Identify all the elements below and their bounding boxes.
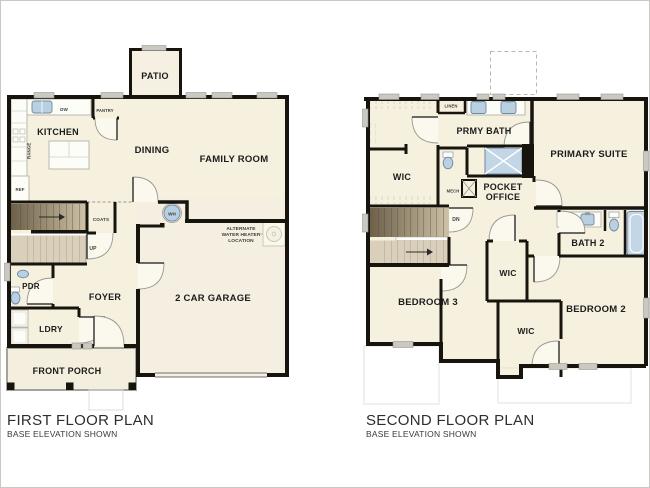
powder-sink	[18, 270, 29, 278]
bath2-toilet	[610, 219, 619, 231]
roof-outline-left	[364, 346, 439, 404]
patio-roof-outline	[491, 52, 537, 95]
stairs-second-floor	[368, 208, 449, 265]
label-foyer: FOYER	[89, 292, 122, 302]
label-wic-bedroom2: WIC	[517, 326, 534, 336]
toilet-tank	[11, 287, 20, 292]
stairs-first-floor	[9, 204, 86, 263]
label-dishwasher: DW	[60, 107, 68, 112]
label-refrigerator: REF	[15, 187, 24, 192]
second-floor-subtitle: BASE ELEVATION SHOWN	[366, 429, 476, 439]
toilet-tank	[609, 212, 619, 218]
porch-post	[66, 383, 74, 391]
label-range: RANGE	[27, 143, 32, 159]
second-floor-title: SECOND FLOOR PLAN	[366, 412, 534, 429]
water-heater-label: WH	[168, 212, 176, 217]
label-bedroom3: BEDROOM 3	[398, 297, 458, 308]
label-laundry: LDRY	[39, 324, 63, 334]
alt-water-heater-line2: WATER HEATER	[222, 232, 261, 238]
label-powder: PDR	[22, 282, 40, 291]
alt-water-heater-line3: LOCATION	[228, 238, 254, 244]
label-pantry: PANTRY	[96, 108, 113, 113]
label-wic-hall: WIC	[499, 268, 516, 278]
label-bath2: BATH 2	[571, 238, 604, 248]
toilet-tank	[443, 152, 453, 158]
label-wic-primary: WIC	[393, 172, 411, 182]
alt-water-heater-line1: ALTERNATE	[226, 226, 256, 232]
floorplan-canvas: WH ALTERNATE WATER HEATER LOCATION	[1, 1, 649, 487]
label-primary-bath: PRMY BATH	[457, 126, 512, 136]
label-pocket-office-line1: POCKET	[483, 182, 522, 192]
mech-closet	[462, 180, 476, 197]
second-floor-plan: PRMY BATH PRIMARY SUITE WIC POCKET OFFIC…	[363, 52, 650, 440]
water-heater: WH	[163, 204, 182, 223]
primary-toilet	[443, 157, 453, 169]
vanity-sink	[471, 102, 486, 114]
powder-toilet	[11, 292, 20, 304]
vanity-sink	[501, 102, 516, 114]
label-mech: MECH	[447, 189, 460, 194]
label-kitchen: KITCHEN	[37, 127, 79, 137]
porch-post	[129, 383, 137, 391]
label-coats: COATS	[93, 217, 109, 222]
label-pocket-office-line2: OFFICE	[486, 192, 521, 202]
label-garage: 2 CAR GARAGE	[175, 293, 251, 304]
washer	[11, 310, 28, 327]
label-up: UP	[89, 246, 97, 252]
label-down: DN	[452, 217, 460, 223]
label-bedroom2: BEDROOM 2	[566, 304, 626, 315]
kitchen-counter-left	[11, 99, 27, 176]
label-linen: LINEN	[444, 104, 457, 109]
floorplan-sheet: WH ALTERNATE WATER HEATER LOCATION	[0, 0, 650, 488]
label-patio: PATIO	[141, 71, 168, 81]
label-dining: DINING	[135, 145, 170, 156]
label-primary-suite: PRIMARY SUITE	[550, 149, 627, 160]
alt-water-heater-circle	[267, 227, 282, 242]
porch-pad-outline	[89, 390, 123, 410]
porch-post	[7, 383, 15, 391]
first-floor-plan: WH ALTERNATE WATER HEATER LOCATION	[5, 46, 290, 440]
label-family-room: FAMILY ROOM	[200, 154, 269, 165]
first-floor-subtitle: BASE ELEVATION SHOWN	[7, 429, 117, 439]
shower-wall	[522, 144, 534, 178]
first-floor-title: FIRST FLOOR PLAN	[7, 412, 154, 429]
label-front-porch: FRONT PORCH	[33, 366, 102, 376]
laundry-fixtures	[11, 310, 28, 345]
dryer	[11, 328, 28, 345]
